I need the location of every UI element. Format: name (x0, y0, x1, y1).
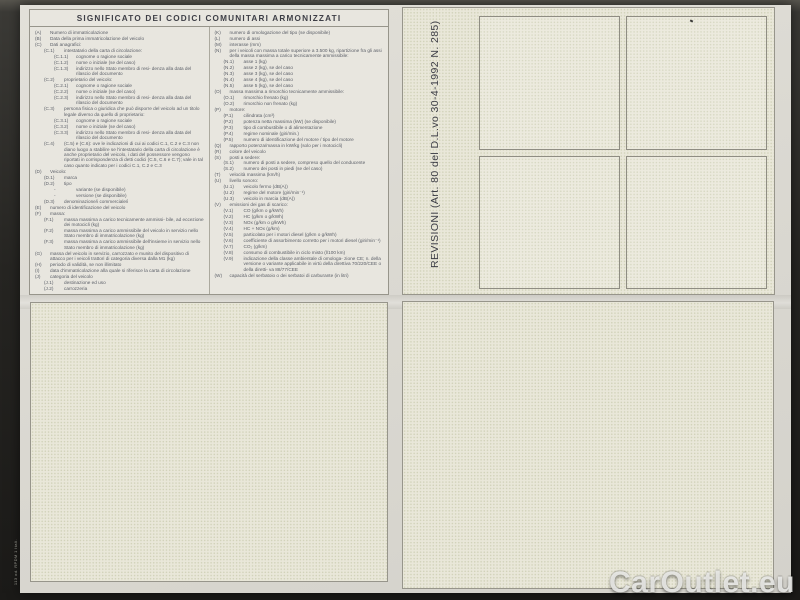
code-text: consumo di combustibile in ciclo misto (… (244, 250, 385, 255)
code-text: asse 1 (kg) (244, 59, 385, 64)
code-line: (O.1)rimorchio frenato (kg) (215, 95, 385, 100)
code-id: (C.3.1) (54, 118, 76, 123)
code-id: (O.2) (224, 101, 244, 106)
code-line: (T)velocità massima (km/h) (215, 172, 385, 177)
code-line: (B)Data della prima immatricolazione del… (35, 36, 205, 41)
code-id: (J) (35, 274, 50, 279)
code-text: veicolo in marcia (dB(A)) (244, 196, 385, 201)
code-id: (C.1.2) (54, 60, 76, 65)
code-id: (U) (215, 178, 230, 183)
code-line: (P.4)regime nominale (giri/min.) (215, 131, 385, 136)
code-id: (D.3) (44, 199, 64, 204)
code-id: (O) (215, 89, 230, 94)
code-id: (T) (215, 172, 230, 177)
code-line: (N.2)asse 2 (kg), se del caso (215, 65, 385, 70)
code-line: (C.2.3)indirizzo nello Stato membro di r… (35, 95, 205, 106)
code-line: (M)interasse (mm) (215, 42, 385, 47)
codes-columns: (A)Numero di immatricolazione(B)Data del… (30, 27, 388, 295)
watermark: CarOutlet.eu (609, 566, 795, 600)
code-text: destinazione ed uso (64, 280, 205, 285)
form-code: 113 od. RPDM 1 Itali. (13, 539, 18, 585)
code-id: (H) (35, 262, 50, 267)
code-id: (P) (215, 107, 230, 112)
code-line: (K)numero di omologazione del tipo (se d… (215, 30, 385, 35)
code-id: (V.8) (224, 250, 244, 255)
code-text: particolato per i motori diesel (g/km o … (244, 232, 385, 237)
code-text: veicolo fermo (dB(A)) (244, 184, 385, 189)
code-line: (U.1)veicolo fermo (dB(A)) (215, 184, 385, 189)
code-text: cognome o ragione sociale (76, 83, 205, 88)
code-id: (N.1) (224, 59, 244, 64)
code-line: -versione (se disponibile) (35, 193, 205, 198)
code-line: (D.1)marca (35, 175, 205, 180)
code-text: HC + NOx (g/km) (244, 226, 385, 231)
code-line: (H)periodo di validità, se non illimitat… (35, 262, 205, 267)
code-text: regime nominale (giri/min.) (244, 131, 385, 136)
code-line: (V)emissioni dei gas di scarico: (215, 202, 385, 207)
code-line: (F.1)massa massima a carico tecnicamente… (35, 217, 205, 228)
code-id: (C.3.2) (54, 124, 76, 129)
code-line: (P)motore: (215, 107, 385, 112)
code-line: (O)massa massima a rimorchio tecnicament… (215, 89, 385, 94)
code-id: (V.4) (224, 226, 244, 231)
code-id: (U.3) (224, 196, 244, 201)
code-text: asse 5 (kg), se del caso (244, 83, 385, 88)
code-line: (Q)rapporto potenza/massa in kW/kg (solo… (215, 143, 385, 148)
revision-stamp-box (626, 156, 767, 290)
code-id: (R) (215, 149, 230, 154)
code-line: (C.1)intestatario della carta di circola… (35, 48, 205, 53)
code-line: (N.5)asse 5 (kg), se del caso (215, 83, 385, 88)
code-line: (U.2)regime del motore (giri/min⁻¹) (215, 190, 385, 195)
code-id: (C.1) (44, 48, 64, 53)
code-id: (L) (215, 36, 230, 41)
code-line: (W)capacità del serbatoio o dei serbatoi… (215, 273, 385, 278)
code-id: (F.2) (44, 228, 64, 233)
code-line: (G)massa del veicolo in servizio, carroz… (35, 251, 205, 262)
code-text: nome o iniziale (se del caso) (76, 89, 205, 94)
code-line: (R)colore del veicolo (215, 149, 385, 154)
code-text: CO (g/km o g/kWh) (244, 208, 385, 213)
code-text: tipo (64, 181, 205, 186)
code-id: (J.2) (44, 286, 64, 291)
code-line: (U.3)veicolo in marcia (dB(A)) (215, 196, 385, 201)
code-text: cognome o ragione sociale (76, 54, 205, 59)
photo-background: SIGNIFICATO DEI CODICI COMUNITARI ARMONI… (0, 0, 800, 600)
code-line: (C.1.1)cognome o ragione sociale (35, 54, 205, 59)
code-line: (J.1)destinazione ed uso (35, 280, 205, 285)
code-id: (S) (215, 155, 230, 160)
code-line: (N.3)asse 3 (kg), se del caso (215, 71, 385, 76)
revision-stamp-box (479, 156, 620, 290)
code-id: (Q) (215, 143, 230, 148)
code-id: (C.2) (44, 77, 64, 82)
code-id: (D.1) (44, 175, 64, 180)
code-id: (C.2.2) (54, 89, 76, 94)
code-id: (P.1) (224, 113, 244, 118)
code-id: (C.2.1) (54, 83, 76, 88)
code-id: (P.4) (224, 131, 244, 136)
code-line: (C.1.3)indirizzo nello Stato membro di r… (35, 66, 205, 77)
code-line: (C)Dati anagrafici: (35, 42, 205, 47)
code-text: cognome o ragione sociale (76, 118, 205, 123)
code-text: indicazione della classe ambientale di o… (244, 256, 385, 272)
code-text: periodo di validità, se non illimitato (50, 262, 205, 267)
code-text: massa massima a carico tecnicamente ammi… (64, 217, 205, 228)
code-text: intestatario della carta di circolazione… (64, 48, 205, 53)
code-id: (V.3) (224, 220, 244, 225)
code-text: indirizzo nello Stato membro di resi- de… (76, 130, 205, 141)
code-line: (C.4)(C.5) e (C.6): ove le indicazioni d… (35, 141, 205, 168)
code-id: (U.2) (224, 190, 244, 195)
code-id: (C.3.3) (54, 130, 76, 135)
code-id: (V.6) (224, 238, 244, 243)
code-text: rapporto potenza/massa in kW/kg (solo pe… (230, 143, 385, 148)
code-id: (B) (35, 36, 50, 41)
code-text: velocità massima (km/h) (230, 172, 385, 177)
code-line: (V.3)NOx (g/km o g/kWh) (215, 220, 385, 225)
code-id: (V.5) (224, 232, 244, 237)
code-id: - (54, 193, 76, 198)
code-line: (P.2)potenza netta massima (kW) (se disp… (215, 119, 385, 124)
code-line: (P.1)cilindrata (cm³) (215, 113, 385, 118)
code-text: nome o iniziale (se del caso) (76, 60, 205, 65)
code-text: regime del motore (giri/min⁻¹) (244, 190, 385, 195)
code-text: nome o iniziale (se del caso) (76, 124, 205, 129)
codes-column-left: (A)Numero di immatricolazione(B)Data del… (30, 27, 209, 295)
code-text: persona fisica o giuridica che può dispo… (64, 106, 205, 117)
code-line: (S.1)numero di posti a sedere, compreso … (215, 160, 385, 165)
code-line: (D.2)tipo (35, 181, 205, 186)
code-line: (C.3.1)cognome o ragione sociale (35, 118, 205, 123)
code-text: interasse (mm) (230, 42, 385, 47)
code-line: (V.5)particolato per i motori diesel (g/… (215, 232, 385, 237)
revision-stamp-box (479, 16, 620, 150)
code-line: (V.9)indicazione della classe ambientale… (215, 256, 385, 272)
code-text: versione (se disponibile) (76, 193, 205, 198)
code-id: (C) (35, 42, 50, 47)
code-text: variante (se disponibile) (76, 187, 205, 192)
code-line: (C.2.1)cognome o ragione sociale (35, 83, 205, 88)
code-id: (I) (35, 268, 50, 273)
blank-panel-bottom-left (30, 302, 388, 582)
code-line: (O.2)rimorchio non frenato (kg) (215, 101, 385, 106)
code-line: (D.3)denominazione/i commerciale/i (35, 199, 205, 204)
code-text: rimorchio frenato (kg) (244, 95, 385, 100)
code-id: (V.2) (224, 214, 244, 219)
code-id: (F) (35, 211, 50, 216)
code-id: (P.5) (224, 137, 244, 142)
code-id: (N.5) (224, 83, 244, 88)
code-text: marca (64, 175, 205, 180)
code-id: (W) (215, 273, 230, 278)
code-text: CO₂ (g/km) (244, 244, 385, 249)
code-line: (N)per i veicoli con massa totale superi… (215, 48, 385, 59)
code-line: (V.7)CO₂ (g/km) (215, 244, 385, 249)
code-text: colore del veicolo (230, 149, 385, 154)
code-text: massa del veicolo in servizio, carrozzat… (50, 251, 205, 262)
code-line: (N.4)asse 4 (kg), se del caso (215, 77, 385, 82)
code-text: categoria del veicolo (50, 274, 205, 279)
code-line: (V.1)CO (g/km o g/kWh) (215, 208, 385, 213)
code-text: asse 2 (kg), se del caso (244, 65, 385, 70)
code-id: (C.4) (44, 141, 64, 146)
code-text: carrozzeria (64, 286, 205, 291)
code-line: (C.1.2)nome o iniziale (se del caso) (35, 60, 205, 65)
codes-title: SIGNIFICATO DEI CODICI COMUNITARI ARMONI… (30, 10, 388, 27)
code-text: cilindrata (cm³) (244, 113, 385, 118)
code-text: asse 3 (kg), se del caso (244, 71, 385, 76)
code-id: (F.1) (44, 217, 64, 222)
code-id: (S.2) (224, 166, 244, 171)
code-line: (D)Veicolo: (35, 169, 205, 174)
code-line: (V.6)coefficiente di assorbimento corret… (215, 238, 385, 243)
code-text: Numero di immatricolazione (50, 30, 205, 35)
code-id: (J.1) (44, 280, 64, 285)
code-line: (F.2)massa massima a carico ammissibile … (35, 228, 205, 239)
code-id: (N.4) (224, 77, 244, 82)
code-text: numero dei posti in piedi (se del caso) (244, 166, 385, 171)
document-sheet: SIGNIFICATO DEI CODICI COMUNITARI ARMONI… (20, 5, 791, 593)
code-id: (U.1) (224, 184, 244, 189)
code-text: coefficiente di assorbimento corretto pe… (244, 238, 385, 243)
code-line: (U)livello sonoro: (215, 178, 385, 183)
code-id: (V.9) (224, 256, 244, 261)
code-text: Veicolo: (50, 169, 205, 174)
code-id: (N.2) (224, 65, 244, 70)
code-text: livello sonoro: (230, 178, 385, 183)
code-id: (V.1) (224, 208, 244, 213)
code-text: massa massima a carico ammissibile dell'… (64, 239, 205, 250)
code-id: (F.3) (44, 239, 64, 244)
code-text: massa massima a carico ammissibile del v… (64, 228, 205, 239)
code-id: (O.1) (224, 95, 244, 100)
code-text: asse 4 (kg), se del caso (244, 77, 385, 82)
code-text: massa massima a rimorchio tecnicamente a… (230, 89, 385, 94)
blank-panel-bottom-right (402, 301, 774, 589)
code-text: Dati anagrafici: (50, 42, 205, 47)
code-text: per i veicoli con massa totale superiore… (230, 48, 385, 59)
code-line: (N.1)asse 1 (kg) (215, 59, 385, 64)
code-text: posti a sedere: (230, 155, 385, 160)
code-line: (S)posti a sedere: (215, 155, 385, 160)
code-line: (F)massa: (35, 211, 205, 216)
code-text: numero di assi (230, 36, 385, 41)
code-id: (G) (35, 251, 50, 256)
code-line: (C.3.2)nome o iniziale (se del caso) (35, 124, 205, 129)
code-line: (P.5)numero di identificazione del motor… (215, 137, 385, 142)
codes-panel: SIGNIFICATO DEI CODICI COMUNITARI ARMONI… (29, 9, 389, 295)
code-id: (C.1.3) (54, 66, 76, 71)
revisioni-label: REVISIONI (Art. 80 del D.L.vo 30-4-1992 … (429, 58, 441, 268)
code-text: emissioni dei gas di scarico: (230, 202, 385, 207)
code-id: (A) (35, 30, 50, 35)
code-line: (L)numero di assi (215, 36, 385, 41)
code-id: (C.2.3) (54, 95, 76, 100)
code-id: - (54, 187, 76, 192)
code-line: (I)data d'immatricolazione alla quale si… (35, 268, 205, 273)
code-id: (V.7) (224, 244, 244, 249)
code-line: (V.4)HC + NOx (g/km) (215, 226, 385, 231)
code-id: (E) (35, 205, 50, 210)
code-id: (V) (215, 202, 230, 207)
code-text: capacità del serbatoio o dei serbatoi di… (230, 273, 385, 278)
code-id: (D) (35, 169, 50, 174)
code-id: (K) (215, 30, 230, 35)
code-text: denominazione/i commerciale/i (64, 199, 205, 204)
code-line: (J)categoria del veicolo (35, 274, 205, 279)
revisioni-panel: REVISIONI (Art. 80 del D.L.vo 30-4-1992 … (402, 7, 775, 295)
code-text: (C.5) e (C.6): ove le indicazioni di cui… (64, 141, 205, 168)
code-text: numero di identificazione del motore / t… (244, 137, 385, 142)
code-line: (S.2)numero dei posti in piedi (se del c… (215, 166, 385, 171)
code-id: (D.2) (44, 181, 64, 186)
code-text: proprietario del veicolo: (64, 77, 205, 82)
code-text: tipo di combustibile o di alimentazione (244, 125, 385, 130)
code-text: HC (g/km o g/kWh) (244, 214, 385, 219)
codes-column-right: (K)numero di omologazione del tipo (se d… (209, 27, 389, 295)
code-id: (C.1.1) (54, 54, 76, 59)
code-text: NOx (g/km o g/kWh) (244, 220, 385, 225)
code-line: (V.8)consumo di combustibile in ciclo mi… (215, 250, 385, 255)
code-id: (P.3) (224, 125, 244, 130)
code-line: (V.2)HC (g/km o g/kWh) (215, 214, 385, 219)
code-line: (C.3)persona fisica o giuridica che può … (35, 106, 205, 117)
code-text: data d'immatricolazione alla quale si ri… (50, 268, 205, 273)
code-line: (E)numero di identificazione del veicolo (35, 205, 205, 210)
code-text: motore: (230, 107, 385, 112)
code-line: -variante (se disponibile) (35, 187, 205, 192)
revision-stamp-box (626, 16, 767, 150)
code-line: (C.2.2)nome o iniziale (se del caso) (35, 89, 205, 94)
code-text: numero di identificazione del veicolo (50, 205, 205, 210)
code-text: indirizzo nello Stato membro di resi- de… (76, 95, 205, 106)
code-line: (P.3)tipo di combustibile o di alimentaz… (215, 125, 385, 130)
code-id: (S.1) (224, 160, 244, 165)
revision-stamp-grid (479, 16, 767, 289)
code-text: numero di posti a sedere, compreso quell… (244, 160, 385, 165)
code-text: indirizzo nello Stato membro di resi- de… (76, 66, 205, 77)
code-text: rimorchio non frenato (kg) (244, 101, 385, 106)
code-line: (A)Numero di immatricolazione (35, 30, 205, 35)
code-id: (C.3) (44, 106, 64, 111)
code-line: (J.2)carrozzeria (35, 286, 205, 291)
code-line: (F.3)massa massima a carico ammissibile … (35, 239, 205, 250)
code-text: massa: (50, 211, 205, 216)
code-text: potenza netta massima (kW) (se disponibi… (244, 119, 385, 124)
code-id: (N.3) (224, 71, 244, 76)
code-line: (C.2)proprietario del veicolo: (35, 77, 205, 82)
code-text: numero di omologazione del tipo (se disp… (230, 30, 385, 35)
code-text: Data della prima immatricolazione del ve… (50, 36, 205, 41)
code-id: (P.2) (224, 119, 244, 124)
code-line: (C.3.3)indirizzo nello Stato membro di r… (35, 130, 205, 141)
code-id: (N) (215, 48, 230, 53)
code-id: (M) (215, 42, 230, 47)
